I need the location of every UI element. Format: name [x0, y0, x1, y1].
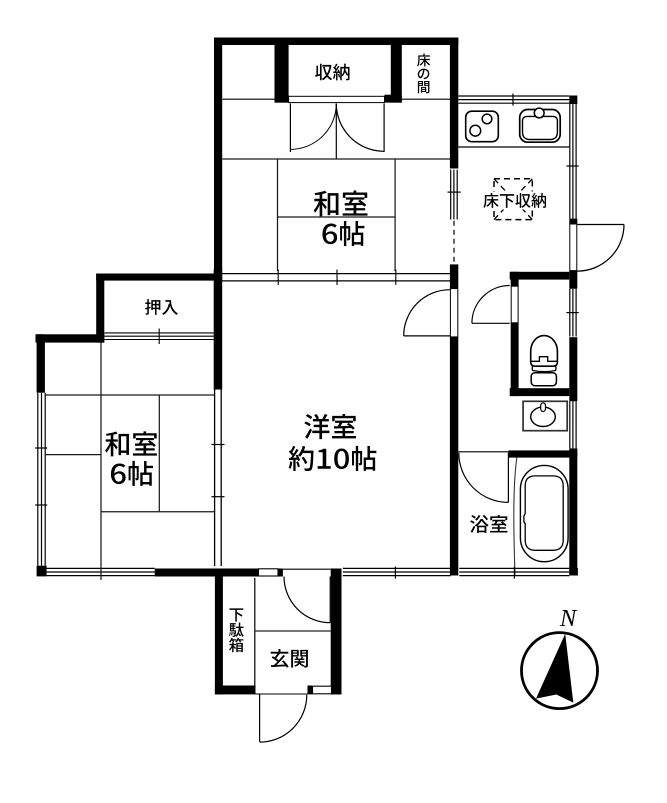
- svg-text:N: N: [559, 605, 578, 632]
